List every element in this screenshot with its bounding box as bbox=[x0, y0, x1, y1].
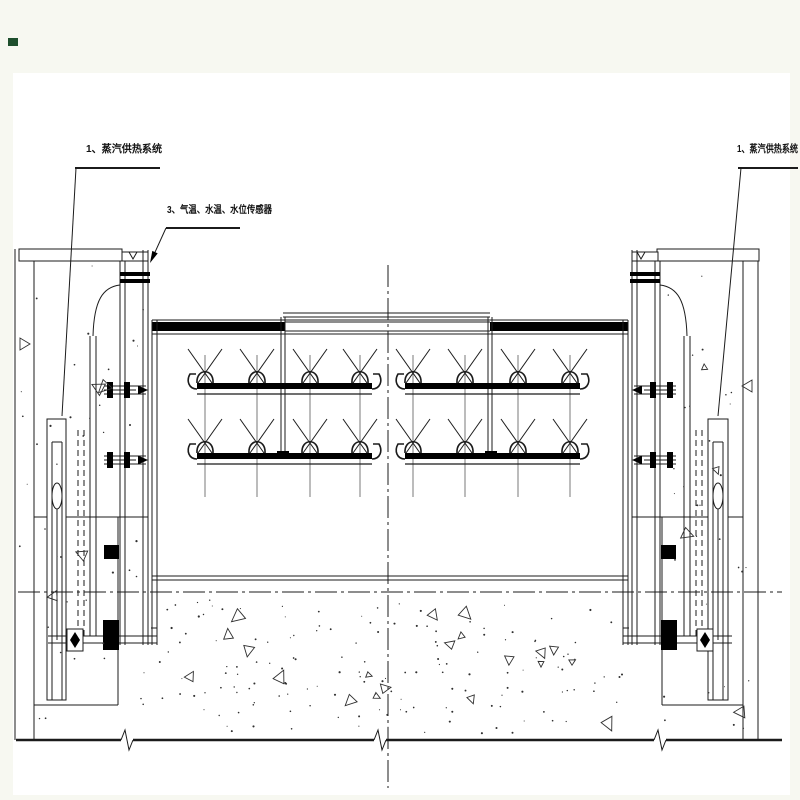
label-steam-right-text: 1、蒸汽供热系统 bbox=[737, 142, 798, 155]
engineering-drawing: 1、蒸汽供热系统 1、蒸汽供热系统 3、气温、水温、水位传感器 bbox=[0, 0, 800, 800]
pipe-union-right bbox=[661, 545, 676, 559]
paper-area bbox=[13, 73, 790, 795]
manifold-left bbox=[103, 620, 119, 650]
label-sensors-text: 3、气温、水温、水位传感器 bbox=[167, 203, 273, 216]
label-steam-left-text: 1、蒸汽供热系统 bbox=[86, 142, 162, 155]
manifold-right bbox=[661, 620, 677, 650]
steam-heater-right bbox=[708, 419, 728, 700]
pipe-union-left bbox=[104, 545, 119, 559]
steam-heater-left bbox=[47, 419, 66, 700]
pipe-clamp-right bbox=[630, 272, 660, 276]
drawing-canvas: 1、蒸汽供热系统 1、蒸汽供热系统 3、气温、水温、水位传感器 bbox=[0, 0, 800, 800]
valve-left bbox=[67, 629, 83, 651]
pipe-clamp-left bbox=[120, 272, 150, 276]
valve-right bbox=[697, 629, 713, 651]
